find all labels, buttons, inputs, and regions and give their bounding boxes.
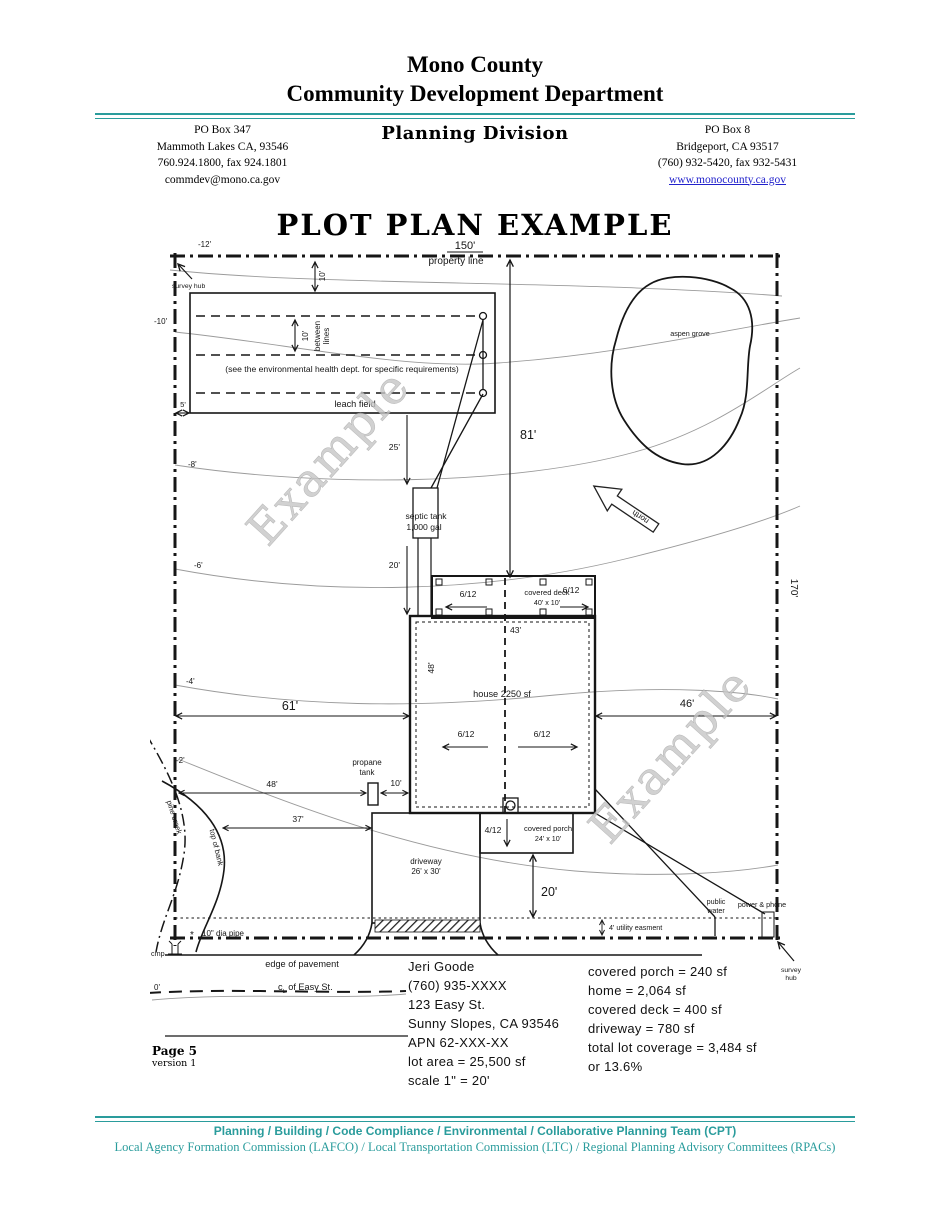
org-department: Community Development Department — [0, 79, 950, 108]
footer-commissions: Local Agency Formation Commission (LAFCO… — [0, 1140, 950, 1155]
dim-10-propane: 10' — [390, 778, 402, 788]
contour-labels: -12' -10' -8' -6' -4' -2' 0' — [154, 240, 212, 992]
dim-43: 43' — [510, 625, 522, 635]
dim-48-horiz: 48' — [266, 779, 278, 789]
north-arrow: north — [587, 475, 664, 538]
contour-label: -8' — [188, 460, 197, 469]
dim-10-top: 10' — [318, 270, 327, 281]
property-line-label: property line — [428, 256, 483, 267]
cmp-label: cmp — [151, 949, 165, 958]
owner-street: 123 Easy St. — [408, 995, 559, 1014]
deck-pitch-right: 6/12 — [563, 585, 580, 595]
dim-170: 170' — [788, 579, 799, 598]
aspen-grove-label: aspen grove — [670, 329, 710, 338]
coverage-line: covered deck = 400 sf — [588, 1000, 757, 1019]
leach-between: between — [313, 321, 322, 351]
leach-note: (see the environmental health dept. for … — [225, 364, 459, 374]
example-watermark: Example — [578, 657, 763, 854]
septic-label-2: 1,000 gal — [406, 522, 441, 532]
porch-label: covered porch — [524, 824, 572, 833]
covered-deck: covered deck 40' x 10' 6/12 6/12 — [432, 576, 595, 618]
leach-dim-10: 10' — [301, 330, 310, 341]
driveway: driveway 26' x 30' — [354, 813, 498, 955]
address-line: PO Box 347 — [95, 122, 350, 139]
septic-tank: septic tank 1,000 gal — [405, 488, 447, 615]
dim-48-vert: 48' — [426, 662, 436, 674]
driveway-size: 26' x 30' — [411, 867, 441, 876]
aspen-grove: aspen grove — [611, 277, 752, 465]
owner-apn: APN 62-XXX-XX — [408, 1033, 559, 1052]
dim-5: 5' — [180, 400, 186, 409]
survey-hub-label: hub — [785, 975, 797, 982]
power-pedestal — [762, 912, 774, 937]
edge-of-pavement-label: edge of pavement — [265, 959, 339, 969]
dim-81: 81' — [520, 428, 536, 442]
propane-label-1: propane — [352, 758, 382, 767]
contour-label: -12' — [198, 240, 212, 249]
letterhead: Mono County Community Development Depart… — [0, 0, 950, 108]
dim-61: 61' — [282, 699, 298, 713]
house-label: house 2250 sf — [473, 689, 531, 699]
covered-porch: covered porch 24' x 10' 4/12 — [480, 813, 573, 853]
dim-150: 150' — [455, 240, 475, 252]
address-line: 760.924.1800, fax 924.1801 — [95, 155, 350, 172]
propane-label-2: tank — [359, 768, 375, 777]
pipe-label: 10" dia pipe — [202, 929, 245, 938]
contour-label: -4' — [186, 677, 195, 686]
coverage-line: driveway = 780 sf — [588, 1019, 757, 1038]
public-water-label-2: water — [706, 906, 725, 915]
owner-info-block: Jeri Goode (760) 935-XXXX 123 Easy St. S… — [408, 957, 559, 1090]
division-title: Planning Division — [350, 122, 600, 144]
coverage-block: covered porch = 240 sf home = 2,064 sf c… — [588, 962, 757, 1076]
dim-20-upper: 20' — [389, 560, 401, 570]
star-symbol: * — [190, 930, 194, 941]
address-line: (760) 932-5420, fax 932-5431 — [600, 155, 855, 172]
survey-hub-label: survey — [781, 967, 802, 974]
house-pitch-left: 6/12 — [458, 729, 475, 739]
teal-rule-top — [95, 113, 855, 119]
house-pitch-right: 6/12 — [534, 729, 551, 739]
header-address-row: PO Box 347 Mammoth Lakes CA, 93546 760.9… — [95, 122, 855, 188]
example-watermark: Example — [236, 359, 421, 556]
teal-rule-bottom — [95, 1116, 855, 1122]
scale: scale 1" = 20' — [408, 1071, 559, 1090]
footer-divisions: Planning / Building / Code Compliance / … — [0, 1124, 950, 1138]
coverage-line: or 13.6% — [588, 1057, 757, 1076]
deck-size: 40' x 10' — [534, 598, 561, 607]
porch-pitch: 4/12 — [485, 825, 502, 835]
address-left: PO Box 347 Mammoth Lakes CA, 93546 760.9… — [95, 122, 350, 188]
owner-city: Sunny Slopes, CA 93546 — [408, 1014, 559, 1033]
survey-hub-label: survey hub — [172, 283, 205, 290]
easy-st-centerline-label: cL of Easy St. — [278, 982, 333, 995]
contour-lines — [152, 270, 800, 1000]
contour-label: -10' — [154, 317, 168, 326]
dim-25: 25' — [389, 442, 401, 452]
culvert-symbol — [168, 941, 182, 954]
utility-easement: 4' utility easment — [175, 918, 777, 935]
property-boundary — [170, 253, 780, 946]
address-right: PO Box 8 Bridgeport, CA 93517 (760) 932-… — [600, 122, 855, 188]
email-address: commdev@mono.ca.gov — [95, 172, 350, 189]
pine-creek-label: pine creek — [165, 799, 184, 835]
coverage-line: home = 2,064 sf — [588, 981, 757, 1000]
org-name: Mono County — [0, 50, 950, 79]
lot-area: lot area = 25,500 sf — [408, 1052, 559, 1071]
driveway-label: driveway — [410, 857, 442, 866]
deck-pitch-left: 6/12 — [460, 589, 477, 599]
contour-label: 0' — [154, 983, 160, 992]
house: 43' 48' house 2250 sf 6/12 6/12 — [410, 578, 595, 813]
porch-size: 24' x 10' — [535, 834, 562, 843]
contour-label: -6' — [194, 561, 203, 570]
propane-tank: propane tank 48' 10' — [179, 758, 408, 805]
contour-label: -2' — [176, 756, 185, 765]
leach-lines: lines — [322, 328, 331, 344]
driveway-crossing-hatch — [375, 920, 480, 932]
septic-label-1: septic tank — [405, 511, 447, 521]
address-line: Mammoth Lakes CA, 93546 — [95, 139, 350, 156]
power-phone-label: power & phone — [738, 900, 786, 909]
dim-37: 37' — [292, 814, 304, 824]
address-line: Bridgeport, CA 93517 — [600, 139, 855, 156]
owner-name: Jeri Goode — [408, 957, 559, 976]
public-water-label-1: public — [707, 897, 726, 906]
easement-label: 4' utility easment — [609, 923, 662, 932]
owner-phone: (760) 935-XXXX — [408, 976, 559, 995]
version: version 1 — [152, 1058, 197, 1069]
website-link[interactable]: www.monocounty.ca.gov — [669, 174, 786, 186]
pine-creek: top of bank pine creek — [150, 734, 225, 952]
coverage-line: total lot coverage = 3,484 sf — [588, 1038, 757, 1057]
survey-hub-bottomright: survey hub — [778, 942, 802, 982]
page-number: Page 5 — [152, 1044, 197, 1058]
cleanout-circle — [506, 801, 515, 810]
dim-20-lower: 20' — [541, 885, 557, 899]
address-line: PO Box 8 — [600, 122, 855, 139]
coverage-line: covered porch = 240 sf — [588, 962, 757, 981]
survey-hub-topleft: survey hub — [172, 264, 205, 290]
page-note: Page 5 version 1 — [152, 1044, 197, 1069]
